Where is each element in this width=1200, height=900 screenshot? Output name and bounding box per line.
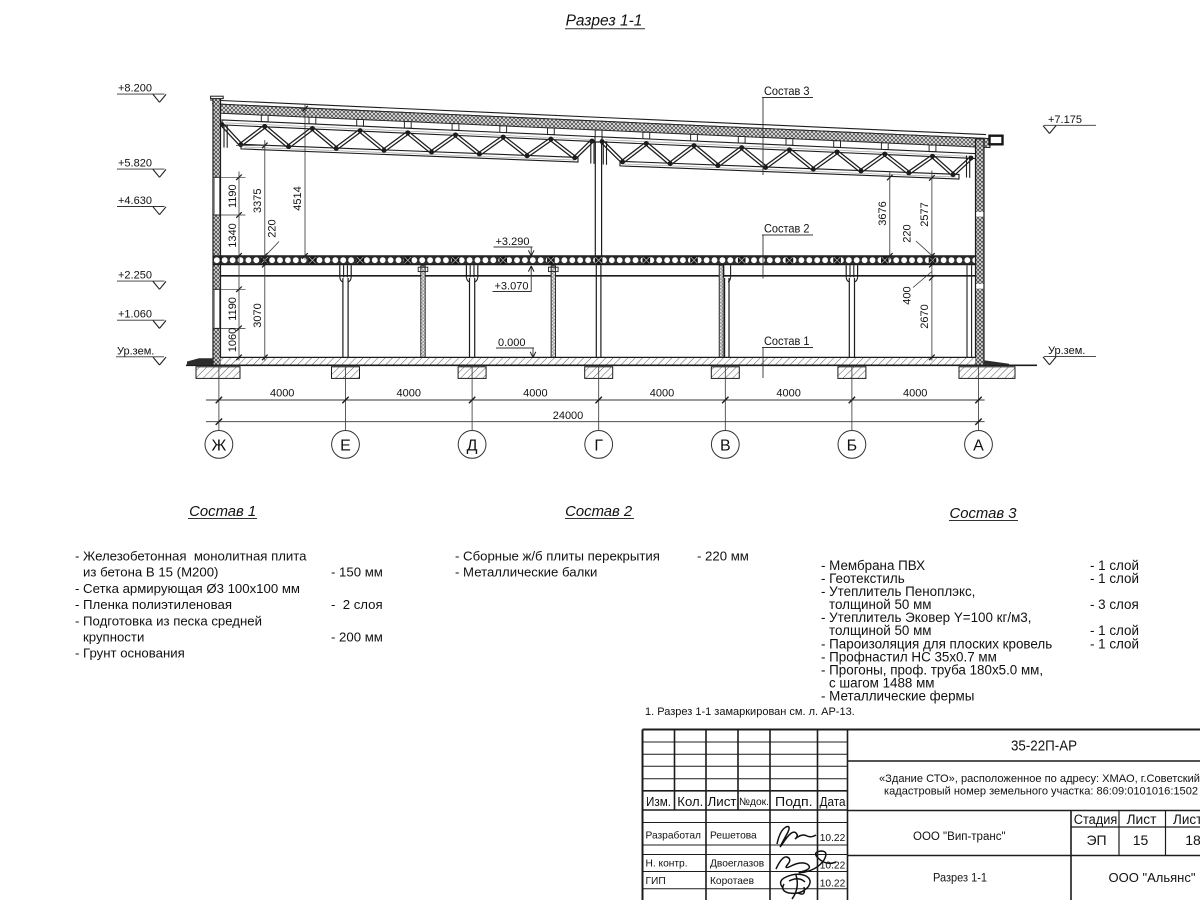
svg-text:+1.060: +1.060	[118, 309, 152, 321]
svg-text:10.22: 10.22	[820, 833, 846, 844]
svg-text:400: 400	[902, 286, 914, 304]
svg-text:4000: 4000	[776, 387, 800, 399]
svg-text:- Подготовка из песка средней: - Подготовка из песка средней	[75, 613, 262, 628]
svg-text:220: 220	[902, 224, 914, 242]
svg-text:крупности: крупности	[83, 630, 144, 645]
svg-text:2577: 2577	[919, 202, 931, 226]
svg-text:+3.070: +3.070	[495, 280, 529, 292]
svg-text:Д: Д	[467, 437, 478, 454]
svg-text:Состав 3: Состав 3	[764, 84, 810, 98]
svg-text:10.22: 10.22	[820, 879, 846, 890]
svg-text:Ур.зем.: Ур.зем.	[117, 345, 154, 357]
svg-text:Состав 3: Состав 3	[950, 506, 1017, 522]
svg-text:+7.175: +7.175	[1048, 114, 1082, 126]
svg-text:+3.290: +3.290	[496, 236, 530, 248]
svg-text:«Здание СТО», расположенное по: «Здание СТО», расположенное по адресу: Х…	[879, 773, 1200, 785]
svg-text:Разрез 1-1: Разрез 1-1	[566, 13, 643, 30]
svg-text:Разработал: Разработал	[646, 830, 702, 842]
svg-text:4000: 4000	[903, 387, 927, 399]
svg-text:- 3 слоя: - 3 слоя	[1090, 597, 1139, 612]
svg-text:ГИП: ГИП	[646, 876, 666, 887]
svg-text:Кол.: Кол.	[677, 794, 703, 809]
svg-text:15: 15	[1133, 832, 1149, 848]
svg-text:Состав 1: Состав 1	[189, 504, 256, 520]
svg-text:1. Разрез 1-1 замаркирован см.: 1. Разрез 1-1 замаркирован см. л. АР-13.	[645, 706, 855, 718]
svg-text:- 150 мм: - 150 мм	[331, 565, 383, 580]
svg-text:Подп.: Подп.	[775, 794, 813, 809]
svg-text:18: 18	[1185, 832, 1200, 848]
svg-text:24000: 24000	[553, 410, 584, 422]
svg-text:Е: Е	[340, 437, 351, 454]
svg-text:Листов: Листов	[1173, 812, 1200, 827]
svg-text:4000: 4000	[650, 387, 674, 399]
svg-text:1340: 1340	[227, 223, 239, 247]
svg-text:- 1 слой: - 1 слой	[1090, 636, 1139, 651]
svg-text:Н. контр.: Н. контр.	[646, 859, 688, 870]
svg-text:35-22П-АР: 35-22П-АР	[1011, 739, 1077, 755]
svg-text:1190: 1190	[227, 184, 239, 208]
svg-text:Изм.: Изм.	[646, 794, 671, 809]
svg-text:Коротаев: Коротаев	[710, 876, 754, 887]
svg-text:Ур.зем.: Ур.зем.	[1048, 345, 1085, 357]
svg-text:ООО "Вип-транс": ООО "Вип-транс"	[913, 831, 1006, 843]
svg-text:ООО "Альянс": ООО "Альянс"	[1109, 870, 1196, 885]
svg-text:1190: 1190	[227, 297, 239, 321]
svg-text:2670: 2670	[919, 304, 931, 328]
svg-text:А: А	[973, 437, 984, 454]
svg-text:- 220 мм: - 220 мм	[697, 549, 749, 564]
svg-text:+5.820: +5.820	[118, 158, 152, 170]
svg-text:ЭП: ЭП	[1086, 832, 1106, 848]
svg-text:№док.: №док.	[739, 796, 769, 808]
svg-text:4000: 4000	[523, 387, 547, 399]
svg-text:Состав 2: Состав 2	[764, 221, 810, 235]
svg-text:Состав 2: Состав 2	[565, 504, 632, 520]
svg-text:0.000: 0.000	[498, 337, 526, 349]
svg-text:Дата: Дата	[820, 794, 847, 809]
svg-text:4514: 4514	[292, 186, 304, 210]
svg-text:220: 220	[267, 219, 279, 237]
svg-text:- Пленка полиэтиленовая: - Пленка полиэтиленовая	[75, 597, 232, 612]
svg-text:Лист: Лист	[708, 794, 737, 809]
svg-text:Решетова: Решетова	[710, 831, 757, 842]
svg-text:- Железобетонная монолитная п: - Железобетонная монолитная плита	[75, 549, 307, 564]
svg-text:Состав 1: Состав 1	[764, 334, 810, 348]
svg-text:из бетона В 15 (М200): из бетона В 15 (М200)	[83, 565, 218, 580]
svg-text:- 1 слой: - 1 слой	[1090, 571, 1139, 586]
svg-text:Разрез 1-1: Разрез 1-1	[933, 871, 987, 885]
svg-text:+2.250: +2.250	[118, 270, 152, 282]
svg-text:- Сетка армирующая Ø3 100х100: - Сетка армирующая Ø3 100х100 мм	[75, 581, 300, 596]
svg-text:кадастровый номер земельного у: кадастровый номер земельного участка: 86…	[884, 786, 1198, 798]
svg-text:Г: Г	[594, 437, 603, 454]
svg-text:- Грунт основания: - Грунт основания	[75, 646, 185, 661]
svg-text:3375: 3375	[252, 188, 264, 212]
svg-text:3070: 3070	[252, 303, 264, 327]
svg-text:Стадия: Стадия	[1074, 812, 1118, 827]
svg-text:Двоеглазов: Двоеглазов	[710, 859, 764, 870]
svg-text:Б: Б	[847, 437, 858, 454]
svg-text:- Сборные ж/б плиты перекрытия: - Сборные ж/б плиты перекрытия	[455, 549, 660, 564]
svg-text:1060: 1060	[227, 328, 239, 352]
svg-text:3676: 3676	[877, 201, 889, 225]
svg-text:- Металлические фермы: - Металлические фермы	[821, 689, 974, 704]
svg-text:В: В	[720, 437, 731, 454]
svg-text:+8.200: +8.200	[118, 83, 152, 95]
svg-text:4000: 4000	[270, 387, 294, 399]
svg-text:Лист: Лист	[1127, 812, 1157, 827]
svg-text:- Металлические балки: - Металлические балки	[455, 565, 597, 580]
svg-text:4000: 4000	[397, 387, 421, 399]
svg-text:+4.630: +4.630	[118, 195, 152, 207]
svg-text:Ж: Ж	[212, 437, 227, 454]
svg-text:- 200 мм: - 200 мм	[331, 630, 383, 645]
svg-text:- 2 слоя: - 2 слоя	[331, 597, 383, 612]
